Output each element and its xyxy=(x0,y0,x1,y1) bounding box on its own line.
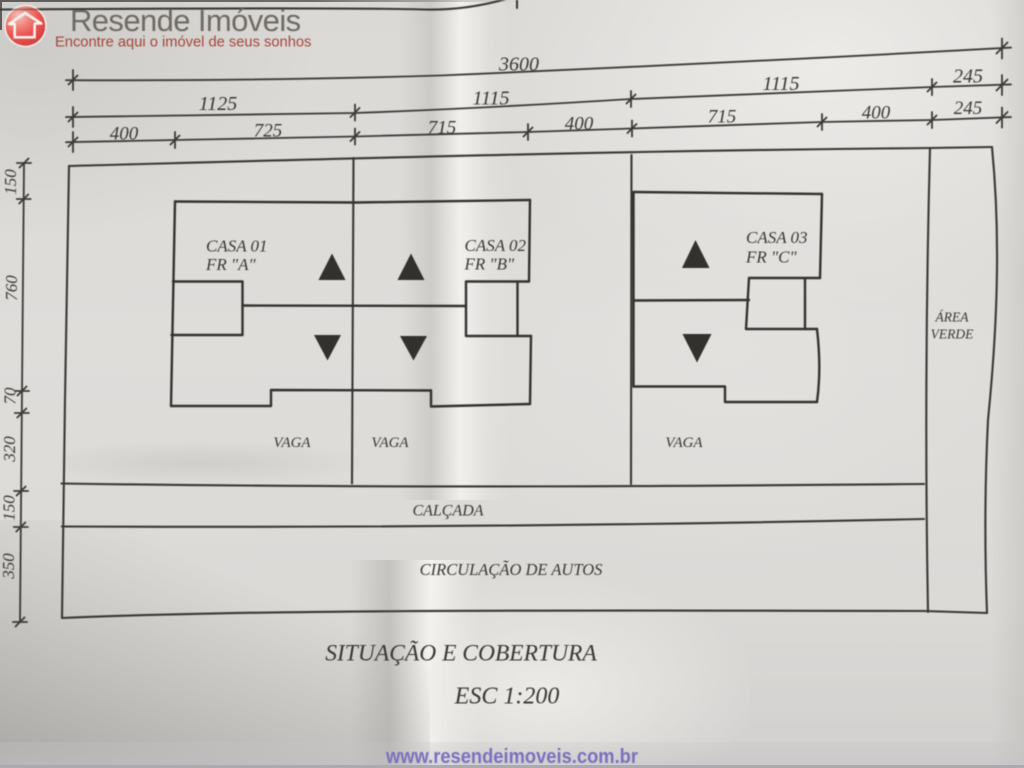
svg-text:715: 715 xyxy=(428,118,457,139)
svg-text:400: 400 xyxy=(110,124,139,145)
svg-text:320: 320 xyxy=(0,436,19,463)
svg-text:70: 70 xyxy=(1,387,20,405)
svg-text:VERDE: VERDE xyxy=(931,327,974,342)
svg-text:FR "A": FR "A" xyxy=(205,255,257,274)
svg-text:245: 245 xyxy=(953,66,983,88)
svg-text:760: 760 xyxy=(2,275,21,301)
svg-text:Encontre aqui o imóvel de seus: Encontre aqui o imóvel de seus sonhos xyxy=(55,35,311,51)
svg-text:150: 150 xyxy=(0,495,19,521)
svg-text:3600: 3600 xyxy=(498,54,539,76)
svg-text:VAGA: VAGA xyxy=(273,435,311,451)
svg-text:350: 350 xyxy=(0,553,18,580)
svg-text:FR "C": FR "C" xyxy=(745,248,797,267)
svg-text:CIRCULAÇÃO DE AUTOS: CIRCULAÇÃO DE AUTOS xyxy=(420,560,603,579)
svg-text:FR "B": FR "B" xyxy=(464,255,516,274)
svg-text:400: 400 xyxy=(862,103,891,124)
svg-text:1125: 1125 xyxy=(199,93,238,115)
svg-text:www.resendeimoveis.com.br: www.resendeimoveis.com.br xyxy=(385,745,638,768)
svg-text:1115: 1115 xyxy=(762,73,799,95)
svg-text:ESC 1:200: ESC 1:200 xyxy=(454,684,560,710)
svg-text:245: 245 xyxy=(954,98,983,119)
svg-text:Resende Imóveis: Resende Imóveis xyxy=(70,3,301,38)
svg-text:CASA 02: CASA 02 xyxy=(465,236,527,255)
svg-text:SITUAÇÃO E COBERTURA: SITUAÇÃO E COBERTURA xyxy=(325,640,597,667)
svg-text:ÁREA: ÁREA xyxy=(935,310,970,325)
svg-text:CASA 01: CASA 01 xyxy=(206,237,268,256)
svg-text:715: 715 xyxy=(708,107,737,128)
svg-text:150: 150 xyxy=(1,169,20,195)
svg-text:1115: 1115 xyxy=(472,88,509,110)
svg-text:VAGA: VAGA xyxy=(665,435,703,451)
svg-text:CALÇADA: CALÇADA xyxy=(412,503,483,520)
svg-text:400: 400 xyxy=(565,114,594,135)
svg-text:VAGA: VAGA xyxy=(371,435,409,451)
svg-text:725: 725 xyxy=(254,121,283,142)
svg-text:CASA 03: CASA 03 xyxy=(746,228,808,247)
